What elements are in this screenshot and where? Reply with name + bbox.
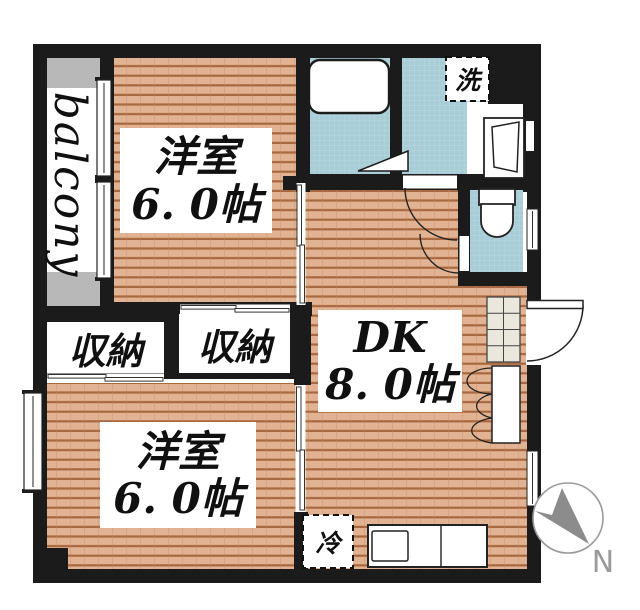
shoe-cabinet [487, 297, 520, 362]
toilet-door-opening [460, 236, 470, 271]
wall-bottom [33, 569, 541, 583]
balcony-cap-bottom [47, 272, 100, 306]
vanity-side-slot [526, 121, 534, 151]
balcony-cap-top [47, 58, 100, 88]
room2-floor [47, 383, 297, 569]
closet-right-door-panel [181, 306, 236, 310]
floorplan-page: balcony 洋室 6. 0帖 洋室 6. 0帖 DK 8. 0帖 収納 収納… [0, 0, 640, 610]
refrigerator-space [303, 515, 353, 568]
floorplan-drawing [0, 0, 640, 610]
toilet-bowl [481, 204, 513, 237]
compass-icon [533, 483, 603, 553]
room1-dk-door-panel [300, 245, 305, 303]
vanity-sink-bowl [492, 122, 519, 172]
wall-toilet-bottom [458, 272, 541, 286]
wall-bathroom-left [296, 44, 310, 192]
entrance-door-leaf [527, 301, 583, 309]
balcony-area [47, 58, 100, 306]
bathtub [309, 60, 389, 113]
room1-dk-door-panel [297, 185, 302, 246]
room1-floor [114, 58, 297, 304]
hall-closet-body [492, 366, 520, 443]
washroom-door-opening [403, 176, 457, 189]
room2-dk-door-panel [300, 450, 305, 510]
wall-corner-notch [42, 548, 68, 583]
closet-left-door-panel [48, 375, 106, 379]
room2-dk-door-panel [297, 387, 302, 451]
washing-machine-space [446, 57, 489, 101]
closet-right-door-panel [235, 309, 289, 313]
wall-closet-dk [294, 302, 311, 385]
toilet-tank [479, 189, 515, 205]
closet-left-inner [47, 322, 164, 373]
kitchen-sink [372, 531, 408, 561]
kitchen [368, 525, 487, 567]
closet-left-door-panel [105, 378, 163, 382]
closet-right-inner [179, 314, 290, 373]
